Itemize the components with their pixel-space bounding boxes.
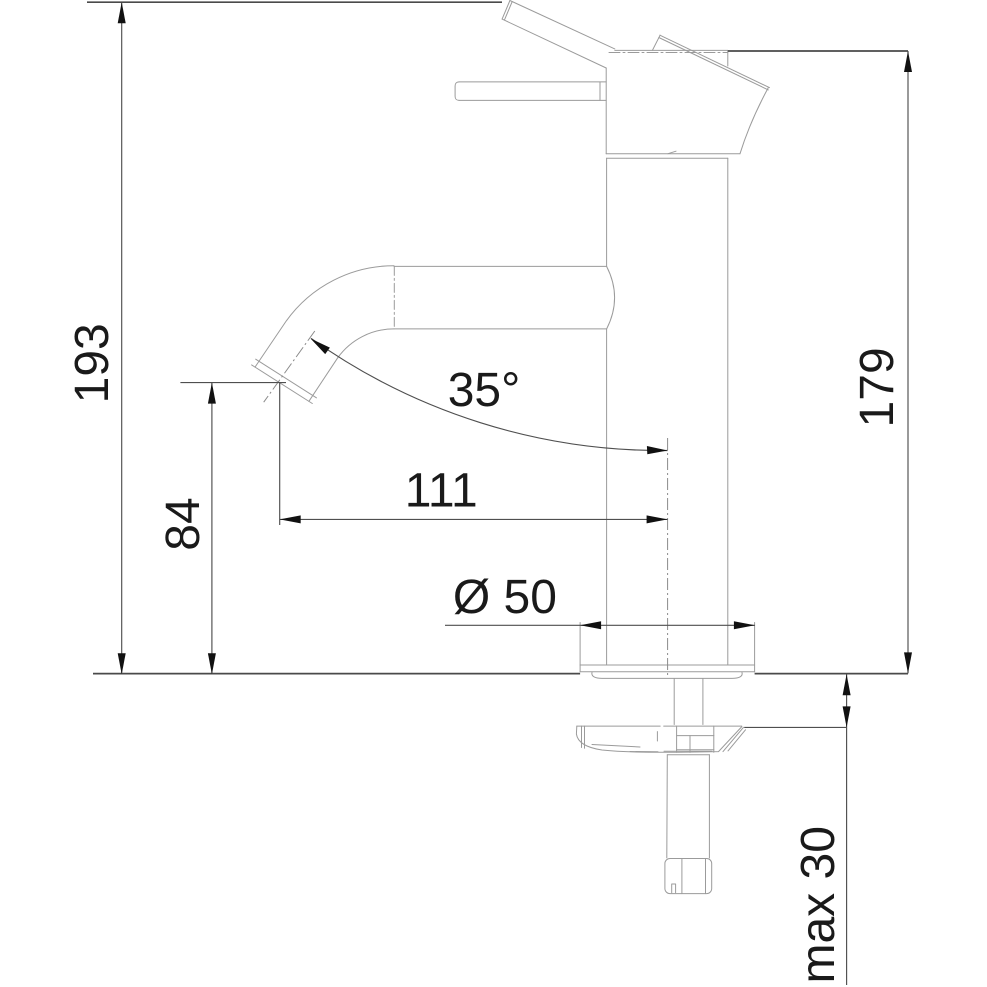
svg-text:Ø 50: Ø 50 (453, 571, 557, 624)
svg-text:111: 111 (405, 465, 478, 518)
svg-text:179: 179 (851, 347, 904, 427)
svg-text:193: 193 (66, 323, 119, 403)
svg-text:max 30: max 30 (792, 826, 845, 983)
svg-text:35°: 35° (448, 364, 521, 417)
svg-text:84: 84 (157, 497, 210, 550)
